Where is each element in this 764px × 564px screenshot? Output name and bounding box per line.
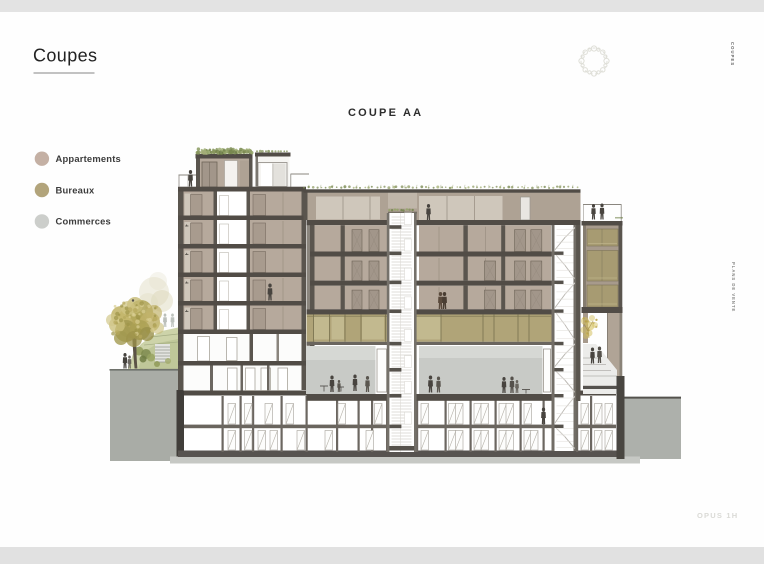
- svg-text:Commerces: Commerces: [56, 216, 111, 227]
- svg-text:Bureaux: Bureaux: [56, 184, 95, 195]
- svg-text:Appartements: Appartements: [56, 153, 121, 164]
- svg-text:PLANS DE VENTE: PLANS DE VENTE: [731, 262, 736, 312]
- svg-text:COUPE AA: COUPE AA: [348, 107, 423, 119]
- svg-text:OPUS 1H: OPUS 1H: [697, 511, 738, 520]
- svg-text:COUPES: COUPES: [730, 42, 735, 66]
- svg-text:Coupes: Coupes: [33, 46, 97, 66]
